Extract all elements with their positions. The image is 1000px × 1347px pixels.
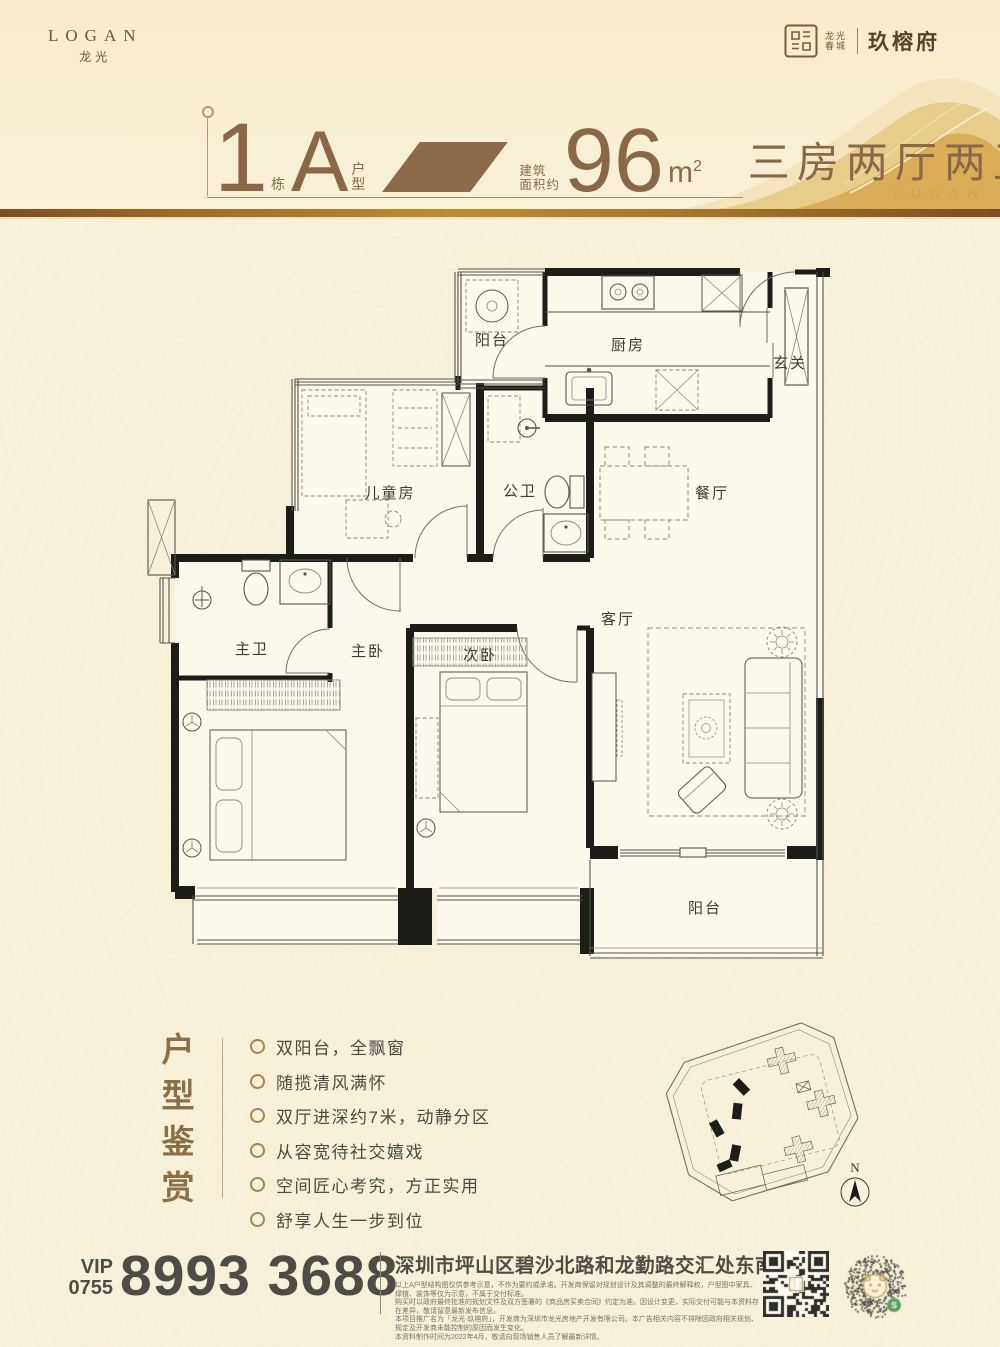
divider-bar-highlight	[0, 217, 1000, 219]
feature-item: 随揽清风满怀	[250, 1069, 490, 1094]
address: 深圳市坪山区碧沙北路和龙勤路交汇处东南角	[395, 1249, 763, 1278]
disclaimer-line: 以上A户型结构图仅供参考示意，不作为要约或承诺。开发商保留对规划设计及其调整的最…	[395, 1282, 763, 1299]
area-code: 0755	[55, 1278, 113, 1299]
disclaimer-line: 购买时以政府最终批准的规划文件及双方签署的《商品房买卖合同》约定为准。因设计变更…	[395, 1299, 763, 1316]
unit-suffix: 户型	[351, 162, 365, 192]
label-foyer: 玄关	[773, 355, 807, 372]
site-boundary	[658, 1022, 870, 1210]
header: LOGAN 龙光 LOGAN 龙光 春城 玖榕府 1 栋 A 户型	[0, 0, 1000, 210]
address-block: 深圳市坪山区碧沙北路和龙勤路交汇处东南角 以上A户型结构图仅供参考示意，不作为要…	[395, 1249, 763, 1342]
feature-item: 舒享人生一步到位	[250, 1207, 490, 1232]
label-second-bed: 次卧	[463, 647, 497, 664]
building-suffix: 栋	[271, 177, 285, 192]
project-subtitle-line1: 龙光	[825, 31, 847, 41]
svg-text:N: N	[850, 1160, 860, 1175]
phone-number: 8993 3688	[120, 1243, 398, 1309]
features-section: 户型鉴赏 双阳台，全飘窗 随揽清风满怀 双厅进深约7米，动静分区 从容宽待社交嬉…	[150, 1032, 490, 1241]
unit-title: 1 栋 A 户型 建筑面积约 96 m2 三房两厅两卫	[196, 98, 756, 198]
seal-icon	[784, 24, 818, 58]
label-balcony-top: 阳台	[475, 332, 509, 349]
feature-item: 空间匠心考究，方正实用	[250, 1172, 490, 1197]
feature-item: 双厅进深约7米，动静分区	[250, 1103, 490, 1128]
label-guest-bath: 公卫	[503, 483, 537, 500]
project-subtitle: 龙光 春城	[825, 31, 847, 51]
bullet-ring-icon	[250, 1074, 265, 1089]
logo-divider	[857, 28, 858, 54]
bullet-ring-icon	[250, 1108, 265, 1123]
parallelogram-decor	[382, 142, 508, 192]
area-label: 建筑面积约	[519, 164, 560, 192]
qr-code-dot-style	[842, 1253, 908, 1319]
label-living: 客厅	[601, 611, 635, 628]
ac-platform	[148, 500, 175, 575]
building-number: 1	[214, 120, 268, 196]
features-list: 双阳台，全飘窗 随揽清风满怀 双厅进深约7米，动静分区 从容宽待社交嬉戏 空间匠…	[250, 1034, 490, 1241]
divider-bar	[0, 209, 1000, 217]
logan-logo-cn: 龙光	[48, 48, 143, 65]
project-name: 玖榕府	[868, 26, 940, 56]
logan-logo-en: LOGAN	[48, 26, 143, 46]
label-master-bed: 主卧	[351, 643, 385, 660]
title-stem-line	[207, 117, 208, 196]
vip-block: VIP 0755	[55, 1257, 113, 1299]
features-title: 户型鉴赏	[150, 1032, 198, 1217]
site-plan: N	[655, 1022, 905, 1222]
disclaimer: 以上A户型结构图仅供参考示意，不作为要约或承诺。开发商保留对规划设计及其调整的最…	[395, 1282, 763, 1342]
compass-icon: N	[841, 1160, 869, 1206]
title-ring-icon	[202, 106, 214, 118]
feature-item: 从容宽待社交嬉戏	[250, 1138, 490, 1163]
label-balcony-bottom: 阳台	[688, 900, 722, 917]
site-podium	[699, 1081, 832, 1201]
site-towers-solid	[697, 1076, 767, 1172]
qr-code-standard	[763, 1251, 829, 1317]
footer-divider	[380, 1252, 381, 1314]
logan-logo: LOGAN 龙光	[48, 26, 143, 65]
unit-letter: A	[291, 129, 348, 196]
bullet-ring-icon	[250, 1212, 265, 1227]
project-subtitle-line2: 春城	[825, 41, 847, 51]
vip-label: VIP	[55, 1257, 113, 1278]
disclaimer-line: 本资料制作时间为2022年4月，敬请向现场销售人员了解最新详情。	[395, 1334, 763, 1343]
layout-text: 三房两厅两卫	[748, 129, 1000, 190]
area-number: 96	[564, 126, 664, 196]
bullet-ring-icon	[250, 1039, 265, 1054]
label-master-bath: 主卫	[235, 641, 269, 658]
label-dining: 餐厅	[695, 485, 729, 502]
features-divider	[222, 1038, 223, 1198]
project-logo: 龙光 春城 玖榕府	[784, 24, 940, 58]
feature-item: 双阳台，全飘窗	[250, 1034, 490, 1059]
bullet-ring-icon	[250, 1177, 265, 1192]
label-kitchen: 厨房	[611, 337, 645, 354]
floor-plan: 阳台 厨房 玄关 儿童房 公卫 餐厅 主卫 主卧 次卧 客厅 阳台	[140, 248, 900, 983]
area-unit: m2	[668, 156, 702, 190]
disclaimer-line: 本项目推广名为「龙光·玖榕府」，开发商为深圳市龙光房地产开发有限公司。本广告相关…	[395, 1316, 763, 1333]
bullet-ring-icon	[250, 1143, 265, 1158]
label-kids-room: 儿童房	[364, 484, 415, 502]
